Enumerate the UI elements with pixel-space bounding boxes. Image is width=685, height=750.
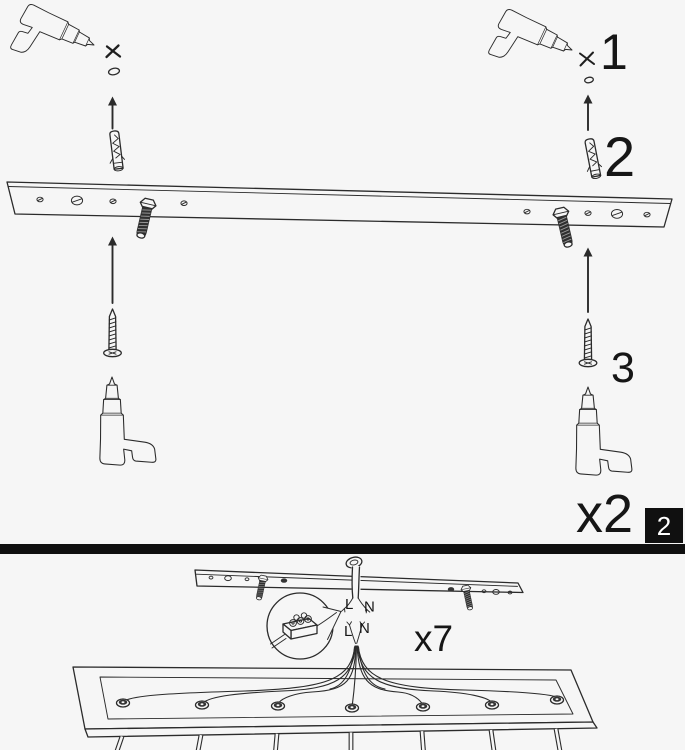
wall-anchor-icon	[106, 130, 126, 172]
cable-gland-icon	[346, 704, 359, 712]
drilled-hole-icon	[108, 67, 120, 76]
drill-icon	[100, 377, 156, 465]
instruction-manual-page: 1 2 3 x2 2	[0, 0, 685, 750]
wire-label-n-top: N	[364, 599, 375, 616]
diagram-canvas: 1 2 3 x2 2	[0, 0, 685, 750]
drill-icon	[576, 387, 632, 475]
cable-gland-icon	[196, 701, 209, 709]
page-number-text: 2	[657, 511, 671, 541]
drill-icon	[8, 3, 99, 80]
cable-gland-icon	[272, 702, 285, 710]
drill-mark-x-icon	[107, 46, 121, 58]
cable-gland-icon	[486, 701, 499, 709]
top-panel: 1 2 3 x2 2	[7, 3, 683, 544]
screw-icon	[104, 309, 122, 357]
step-2-label: 2	[604, 125, 635, 188]
drilled-hole-icon	[584, 76, 594, 83]
screw-icon	[579, 319, 597, 367]
drill-mark-x-icon	[580, 53, 594, 66]
cable-gland-icon	[117, 699, 130, 707]
up-arrow-icon	[584, 95, 593, 131]
step-1-label: 1	[600, 24, 628, 80]
up-arrow-icon	[108, 237, 117, 304]
wire-label-l-bottom: L	[344, 623, 352, 640]
step-3-label: 3	[611, 344, 635, 392]
quantity-x7-label: x7	[414, 618, 453, 659]
up-arrow-icon	[584, 248, 593, 313]
bottom-panel: L N L N x7	[73, 556, 597, 750]
cable-gland-icon	[417, 703, 430, 711]
up-arrow-icon	[108, 97, 117, 129]
cable-gland-icon	[551, 696, 564, 704]
quantity-x2-label: x2	[576, 484, 633, 544]
terminal-block-detail	[267, 593, 341, 659]
wall-anchor-icon	[581, 138, 603, 180]
wire-label-l-top: L	[345, 596, 353, 613]
section-divider	[0, 544, 685, 554]
wire-label-n-bottom: N	[359, 620, 370, 637]
drill-icon	[486, 8, 577, 85]
mounting-bar	[7, 182, 672, 249]
